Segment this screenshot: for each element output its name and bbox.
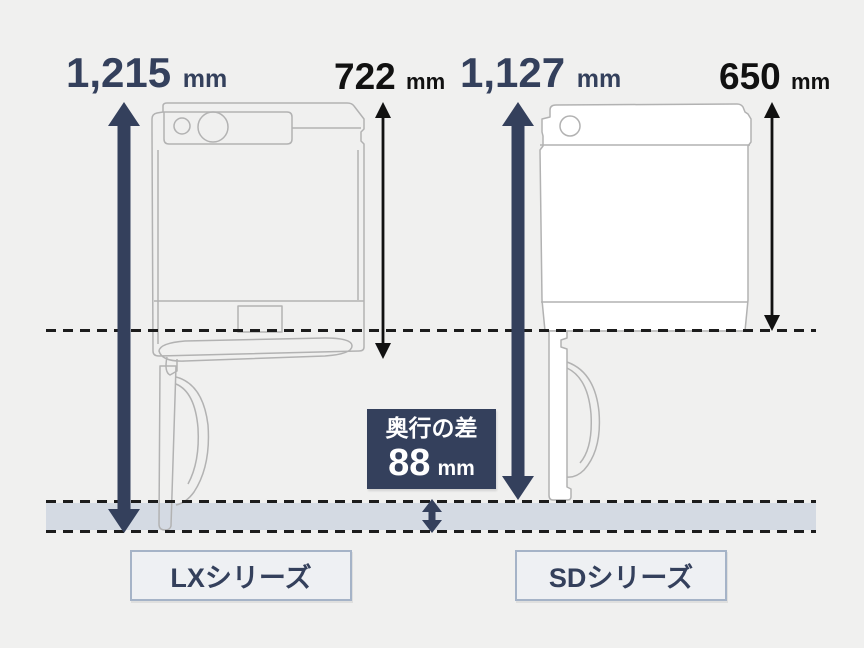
depth-difference-value: 88 bbox=[388, 444, 430, 482]
depth-difference-unit: mm bbox=[437, 458, 474, 479]
sd-total-depth-arrow bbox=[502, 102, 534, 500]
sd-body-depth-unit: mm bbox=[791, 69, 830, 94]
sd-total-depth-measurement: 1,127 mm bbox=[460, 52, 621, 94]
lx-series-label-text: LXシリーズ bbox=[170, 556, 311, 595]
sd-total-depth-value: 1,127 bbox=[460, 49, 565, 96]
sd-body-depth-value: 650 bbox=[719, 56, 781, 97]
lx-total-depth-unit: mm bbox=[183, 65, 227, 93]
lx-body-depth-value: 722 bbox=[334, 56, 396, 97]
depth-difference-badge: 奥行の差 88 mm bbox=[367, 409, 496, 489]
sd-series-label: SDシリーズ bbox=[515, 550, 727, 601]
lx-series-label: LXシリーズ bbox=[130, 550, 352, 601]
difference-arrow bbox=[422, 499, 442, 533]
sd-body-depth-measurement: 650 mm bbox=[719, 58, 830, 95]
lx-body-depth-arrow bbox=[375, 102, 391, 359]
lx-body-depth-measurement: 722 mm bbox=[334, 58, 445, 95]
depth-difference-line: 88 mm bbox=[388, 444, 475, 482]
sd-series-label-text: SDシリーズ bbox=[549, 556, 693, 595]
sd-body-depth-arrow bbox=[764, 102, 780, 331]
lx-total-depth-value: 1,215 bbox=[66, 49, 171, 96]
depth-difference-label: 奥行の差 bbox=[386, 416, 478, 441]
depth-comparison-diagram: 1,215 mm 722 mm 1,127 mm 650 mm 奥行の差 88 … bbox=[0, 0, 864, 648]
lx-body-depth-unit: mm bbox=[406, 69, 445, 94]
sd-total-depth-unit: mm bbox=[577, 65, 621, 93]
lx-total-depth-arrow bbox=[108, 102, 140, 533]
lx-total-depth-measurement: 1,215 mm bbox=[66, 52, 227, 94]
